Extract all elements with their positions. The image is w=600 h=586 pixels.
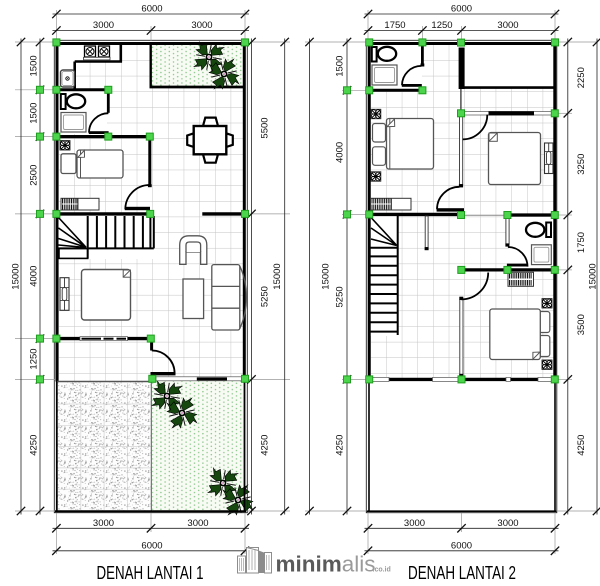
svg-text:1500: 1500 <box>335 56 346 77</box>
svg-text:15000: 15000 <box>11 263 22 289</box>
svg-text:5500: 5500 <box>260 117 271 138</box>
svg-text:6000: 6000 <box>141 4 162 15</box>
svg-text:6000: 6000 <box>451 4 472 15</box>
svg-text:3000: 3000 <box>497 20 518 31</box>
svg-text:1250: 1250 <box>29 348 40 369</box>
svg-text:3000: 3000 <box>187 518 208 529</box>
svg-text:6000: 6000 <box>451 540 472 551</box>
svg-text:5250: 5250 <box>260 286 271 307</box>
svg-text:4000: 4000 <box>335 142 346 163</box>
svg-text:3000: 3000 <box>93 518 114 529</box>
svg-text:3000: 3000 <box>93 20 114 31</box>
svg-text:5250: 5250 <box>335 286 346 307</box>
svg-text:1750: 1750 <box>384 20 405 31</box>
svg-text:3250: 3250 <box>576 154 587 175</box>
svg-text:DENAH LANTAI 2: DENAH LANTAI 2 <box>408 562 516 583</box>
svg-text:15000: 15000 <box>588 263 599 289</box>
svg-text:minimalis: minimalis <box>276 552 376 577</box>
svg-text:1500: 1500 <box>29 103 40 124</box>
svg-text:3000: 3000 <box>191 20 212 31</box>
svg-text:2250: 2250 <box>576 67 587 88</box>
svg-text:.co.id: .co.id <box>373 567 391 574</box>
svg-text:3000: 3000 <box>404 518 425 529</box>
svg-text:3000: 3000 <box>497 518 518 529</box>
svg-text:2500: 2500 <box>29 165 40 186</box>
svg-text:1500: 1500 <box>29 55 40 76</box>
svg-text:DENAH LANTAI 1: DENAH LANTAI 1 <box>97 562 204 583</box>
svg-text:6000: 6000 <box>141 540 162 551</box>
svg-text:1750: 1750 <box>576 232 587 253</box>
svg-text:4250: 4250 <box>335 435 346 456</box>
svg-text:3500: 3500 <box>576 314 587 335</box>
svg-text:4000: 4000 <box>29 266 40 287</box>
svg-text:4250: 4250 <box>260 435 271 456</box>
svg-text:4250: 4250 <box>29 435 40 456</box>
svg-text:15000: 15000 <box>321 263 332 289</box>
svg-text:1250: 1250 <box>431 20 452 31</box>
svg-text:4250: 4250 <box>576 435 587 456</box>
svg-text:15000: 15000 <box>272 263 283 289</box>
